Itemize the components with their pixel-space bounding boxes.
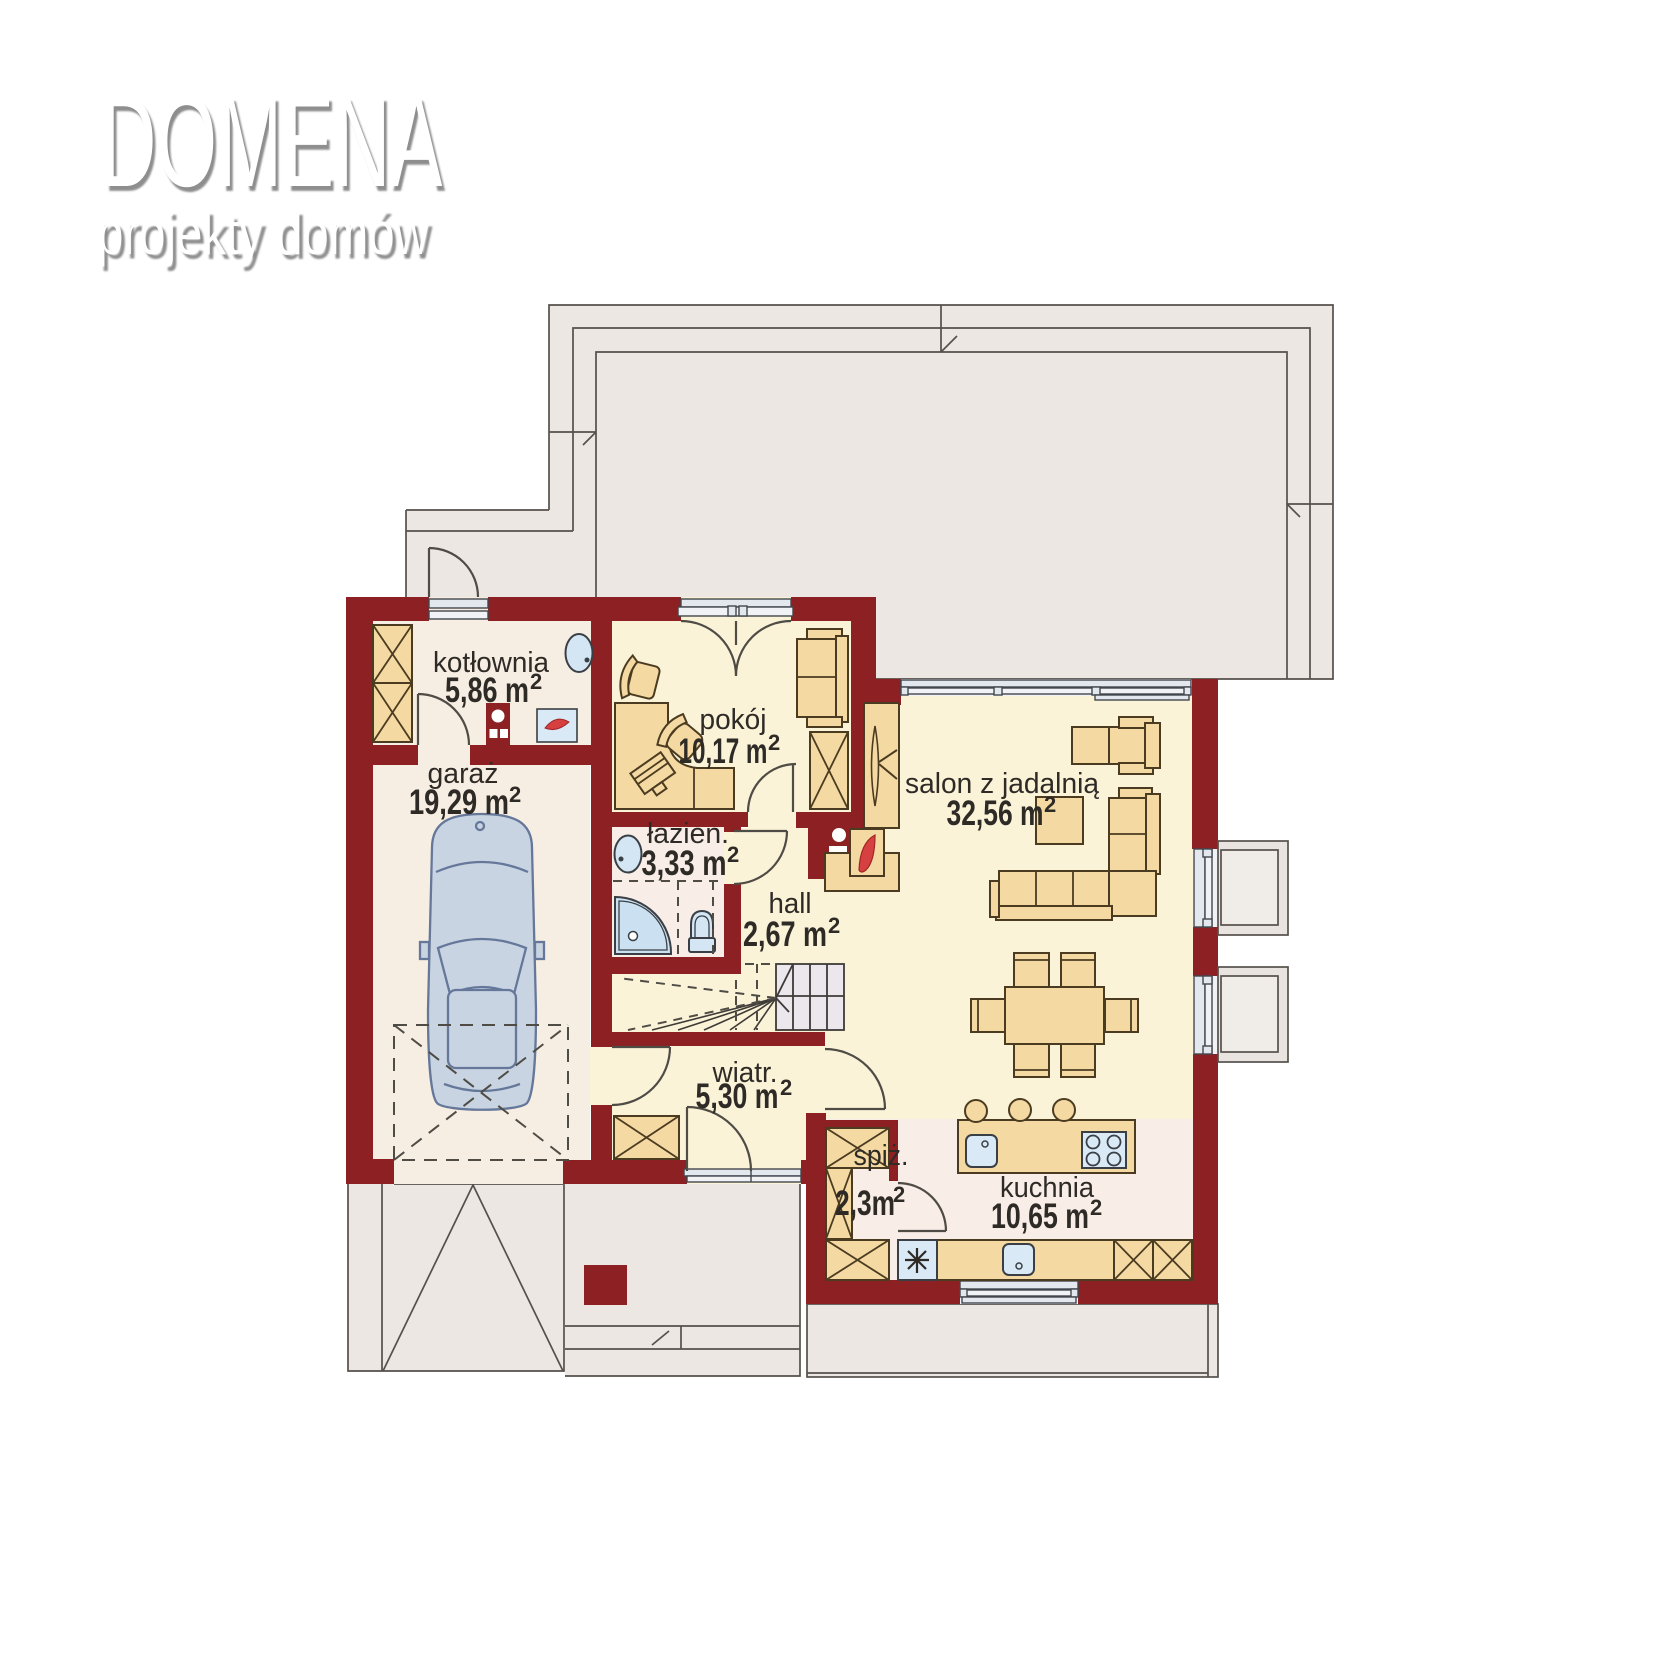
svg-text:2: 2: [727, 842, 739, 867]
svg-text:2,67 m: 2,67 m: [743, 915, 827, 954]
svg-text:10,17 m: 10,17 m: [679, 732, 768, 771]
svg-text:2: 2: [530, 669, 542, 694]
svg-text:19,29 m: 19,29 m: [409, 783, 509, 822]
svg-text:5,86 m: 5,86 m: [445, 671, 529, 710]
svg-text:3,33 m: 3,33 m: [642, 844, 727, 883]
svg-text:2: 2: [509, 782, 521, 807]
svg-text:2: 2: [893, 1182, 905, 1207]
svg-text:2: 2: [828, 913, 840, 938]
svg-text:5,30 m: 5,30 m: [696, 1077, 779, 1116]
svg-text:2: 2: [1044, 792, 1056, 817]
svg-text:2: 2: [768, 730, 780, 755]
svg-text:32,56 m: 32,56 m: [947, 794, 1044, 833]
svg-text:spiż.: spiż.: [854, 1140, 909, 1172]
svg-text:2,3m: 2,3m: [835, 1184, 895, 1223]
svg-text:projekty domów: projekty domów: [97, 201, 430, 268]
svg-text:10,65 m: 10,65 m: [991, 1197, 1089, 1236]
svg-text:2: 2: [780, 1075, 792, 1100]
svg-text:DOMENA: DOMENA: [100, 68, 443, 214]
svg-text:2: 2: [1090, 1195, 1102, 1220]
